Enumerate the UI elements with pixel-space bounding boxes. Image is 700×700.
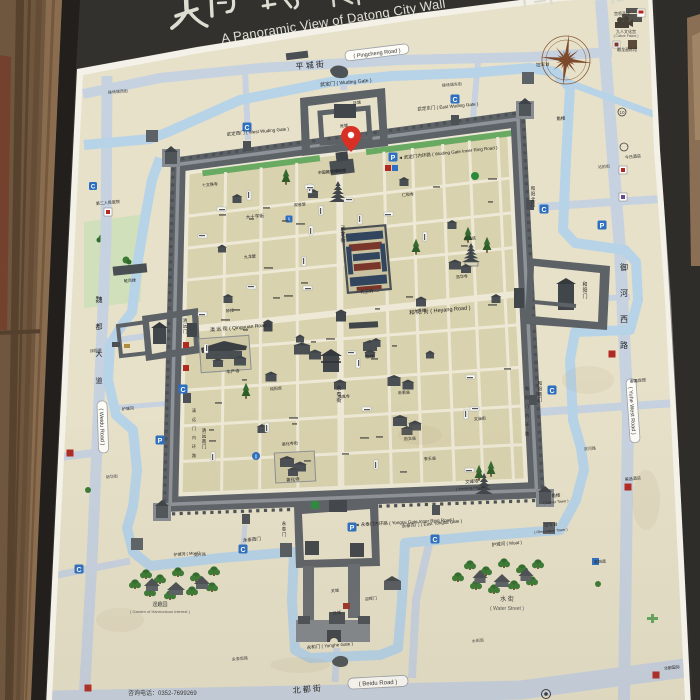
svg-text:站前街: 站前街 (598, 162, 610, 169)
svg-text:( Culture Palace ): ( Culture Palace ) (614, 34, 639, 38)
svg-text:永: 永 (336, 385, 341, 392)
svg-text:乾凤楼: 乾凤楼 (124, 276, 136, 283)
svg-text:河: 河 (620, 288, 628, 298)
svg-text:C: C (91, 185, 96, 191)
svg-text:阳: 阳 (582, 287, 587, 294)
svg-text:御: 御 (620, 262, 628, 272)
svg-text:C: C (180, 387, 185, 394)
svg-text:帝君庙: 帝君庙 (398, 388, 410, 395)
svg-text:宫喷圣迹: 宫喷圣迹 (614, 10, 630, 16)
svg-text:定: 定 (340, 231, 345, 238)
svg-text:C: C (541, 207, 546, 214)
svg-text:太平楼: 太平楼 (414, 306, 426, 313)
svg-text:绿园巷: 绿园巷 (90, 346, 102, 353)
svg-text:月城: 月城 (353, 99, 361, 106)
svg-text:和: 和 (582, 281, 587, 288)
svg-text:瓮城: 瓮城 (340, 122, 348, 129)
svg-text:门: 门 (531, 202, 536, 209)
svg-text:和: 和 (525, 385, 529, 391)
svg-text:10: 10 (619, 110, 625, 115)
svg-text:都: 都 (96, 323, 103, 331)
svg-text:护城河: 护城河 (122, 404, 134, 411)
svg-text:道: 道 (96, 376, 103, 385)
svg-text:清真寺: 清真寺 (338, 392, 350, 399)
svg-text:魏: 魏 (96, 295, 103, 304)
svg-text:街: 街 (340, 237, 345, 244)
svg-text:法华塔: 法华塔 (464, 234, 476, 241)
svg-text:纯阳宫: 纯阳宫 (270, 384, 282, 391)
svg-text:P: P (391, 155, 396, 162)
svg-text:清: 清 (192, 407, 196, 413)
svg-text:门: 门 (582, 293, 587, 300)
svg-text:西: 西 (620, 315, 628, 324)
svg-text:雕龙画栋馆: 雕龙画栋馆 (617, 46, 637, 52)
svg-text:钟楼: 钟楼 (226, 307, 234, 314)
svg-text:仁和寺: 仁和寺 (402, 190, 414, 197)
svg-text:浩华寺: 浩华寺 (456, 272, 468, 279)
svg-text:门: 门 (183, 328, 188, 335)
svg-text:武: 武 (340, 225, 345, 232)
svg-text:九龙壁: 九龙壁 (244, 252, 256, 259)
svg-text:P: P (600, 223, 605, 230)
svg-text:路: 路 (620, 340, 628, 350)
svg-text:观音堂: 观音堂 (294, 200, 306, 207)
